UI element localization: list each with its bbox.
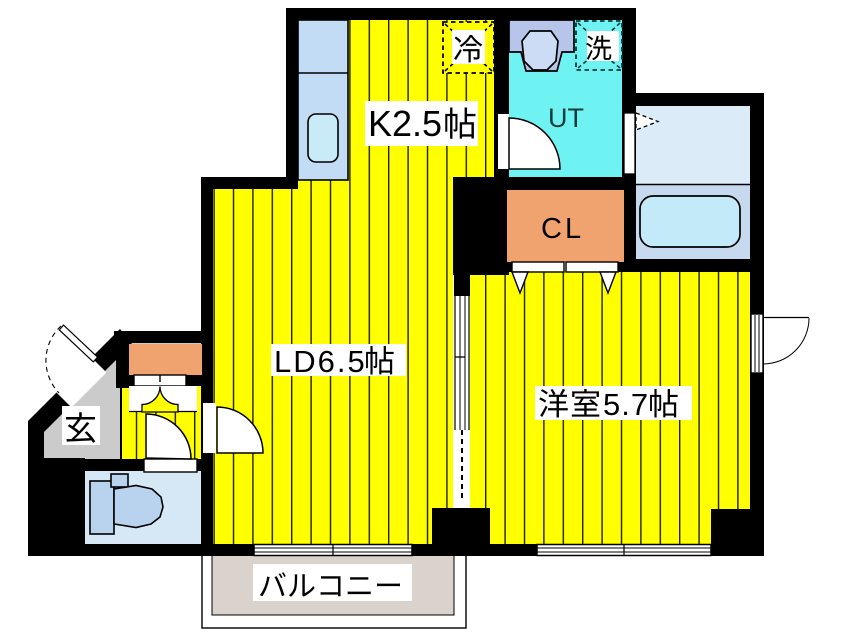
svg-text:K2.5: K2.5 — [368, 103, 442, 144]
svg-text:5.7: 5.7 — [603, 387, 649, 422]
svg-text:LD6.5: LD6.5 — [274, 344, 367, 379]
svg-text:CL: CL — [541, 213, 584, 245]
svg-text:UT: UT — [548, 103, 584, 133]
